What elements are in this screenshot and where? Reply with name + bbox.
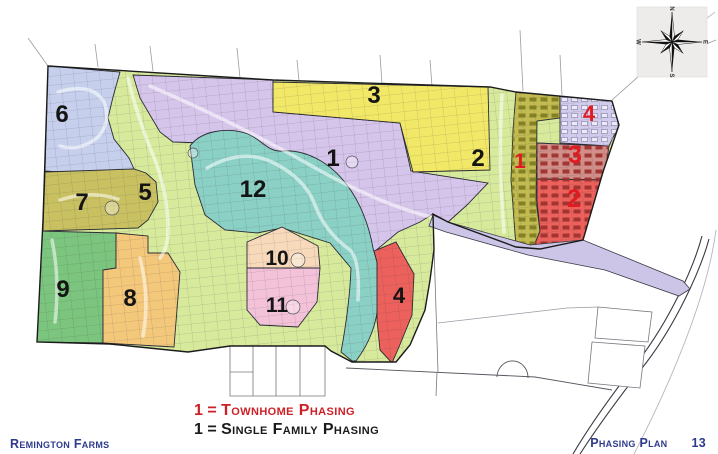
sheet-footer: Phasing Plan 13 <box>590 436 706 450</box>
phase-label: 2 <box>471 145 484 172</box>
context-line <box>560 55 562 95</box>
phase-label: 10 <box>265 247 288 270</box>
phase-label: 4 <box>393 283 406 308</box>
unshaded-parcel <box>230 346 325 396</box>
context-line <box>430 60 432 86</box>
compass-direction-label: W <box>635 39 641 45</box>
legend-single-family-row: 1=Single Family Phasing <box>194 420 379 439</box>
cul-de-sac <box>188 148 198 158</box>
phase-regions <box>37 66 619 363</box>
context-line <box>95 44 98 67</box>
unshaded-parcel <box>595 307 652 342</box>
phase-label: 8 <box>123 285 136 312</box>
context-line <box>436 372 437 396</box>
page: 6579812101113241432NESW 1=Townhome Phasi… <box>0 0 718 454</box>
phase-label: 9 <box>56 276 69 303</box>
cul-de-sac <box>291 253 305 267</box>
phase-label: 3 <box>568 141 582 169</box>
phase-label: 5 <box>138 179 151 206</box>
context-line <box>346 368 612 390</box>
phase-label: 1 <box>326 145 339 172</box>
context-line <box>520 30 523 91</box>
compass-direction-label: N <box>668 6 674 10</box>
cul-de-sac <box>346 156 358 168</box>
page-number: 13 <box>691 436 706 450</box>
phase-label: 12 <box>240 176 267 203</box>
legend-townhome-equals: = <box>203 402 221 419</box>
context-line <box>438 307 598 323</box>
phase-label: 11 <box>266 294 289 317</box>
compass-direction-label: E <box>702 40 708 44</box>
compass-rose-icon: NESW <box>635 6 708 77</box>
legend-townhome-row: 1=Townhome Phasing <box>194 401 379 420</box>
context-line <box>297 60 299 81</box>
phase-label: 1 <box>514 150 526 173</box>
legend-single-family-symbol: 1 <box>194 421 203 438</box>
context-line <box>150 46 153 71</box>
site-plan-map: 6579812101113241432NESW <box>0 0 718 454</box>
phase-label: 2 <box>567 185 581 213</box>
phase-label: 7 <box>75 189 88 216</box>
compass-direction-label: S <box>668 73 674 77</box>
legend-single-family-label: Single Family Phasing <box>221 421 379 438</box>
phase-label: 4 <box>583 101 596 126</box>
phase-label: 3 <box>367 82 380 109</box>
legend-townhome-label: Townhome Phasing <box>221 402 355 419</box>
sheet-title: Phasing Plan <box>590 436 667 450</box>
legend-single-family-equals: = <box>203 421 221 438</box>
context-line <box>380 55 382 84</box>
cul-de-sac <box>105 201 119 215</box>
context-line <box>28 38 48 66</box>
legend-townhome-symbol: 1 <box>194 402 203 419</box>
phase-label: 6 <box>55 101 68 128</box>
project-title: Remington Farms <box>10 437 109 451</box>
phasing-legend: 1=Townhome Phasing 1=Single Family Phasi… <box>194 401 379 439</box>
context-line <box>237 48 240 78</box>
unshaded-parcel <box>588 342 645 388</box>
